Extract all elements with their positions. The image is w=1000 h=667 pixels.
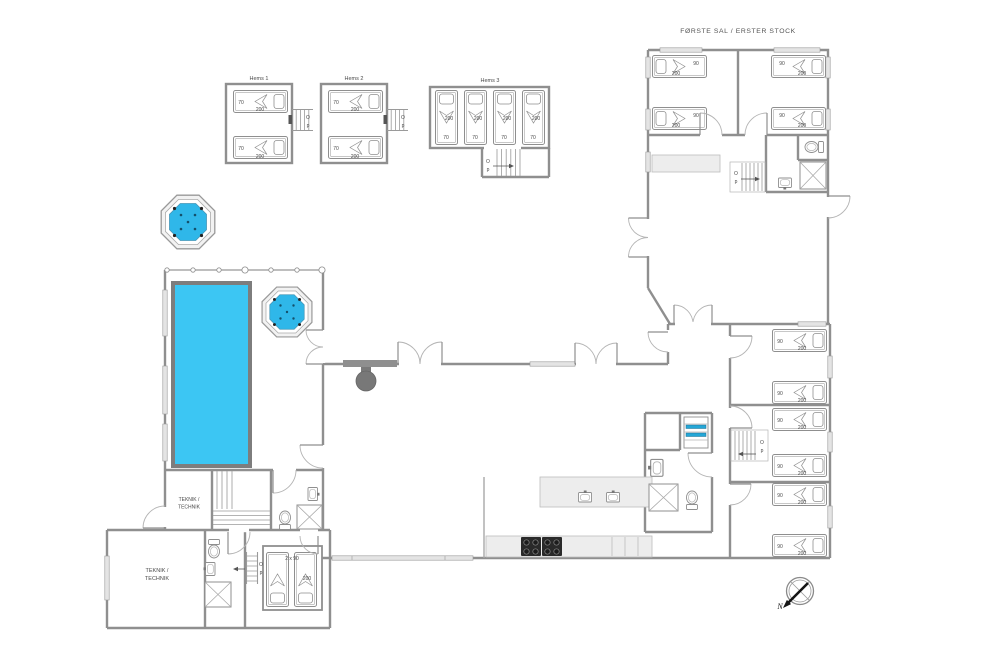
hems2-title: Hems 2	[345, 76, 364, 82]
bed-width-label: 70	[443, 135, 449, 141]
window	[826, 109, 830, 130]
window	[646, 152, 650, 172]
window	[163, 290, 167, 336]
stairs-up-o: O	[760, 440, 764, 446]
bed-width-label: 70	[333, 146, 339, 152]
bed-length-label: 200	[672, 123, 681, 129]
bed-length-label: 200	[532, 116, 541, 122]
shower-icon	[649, 484, 678, 511]
window	[530, 362, 575, 366]
kitchen-island	[540, 477, 652, 507]
double-bed-label: 2 x 90	[285, 556, 299, 562]
window	[646, 57, 650, 78]
bed-length-label: 200	[798, 500, 807, 506]
floor-plan-page: Hems 1 70 200 70 200 O p Hems 2 70 200 7…	[0, 0, 1000, 667]
bed-length-label: 200	[351, 107, 360, 113]
bed-length-label: 200	[798, 123, 807, 129]
bed-length-label: 200	[474, 116, 483, 122]
ladder-arrow-head	[233, 567, 238, 572]
cooktop-icon	[542, 537, 562, 556]
bed-width-label: 70	[472, 135, 478, 141]
stairs-up-p: p	[487, 167, 490, 173]
bed-width-label: 90	[693, 61, 699, 67]
stairs-up-o: O	[734, 171, 738, 177]
bed-width-label: 90	[777, 339, 783, 345]
bed-length-label: 200	[303, 576, 312, 582]
shower-icon	[800, 162, 826, 189]
window	[105, 556, 109, 600]
hems3-title: Hems 3	[481, 78, 500, 84]
hems1-title: Hems 1	[250, 76, 269, 82]
hems3-stairs-icon	[493, 149, 520, 176]
technic-room-label: TECHNIK	[145, 576, 169, 582]
floor-plan-drawing: Hems 1 70 200 70 200 O p Hems 2 70 200 7…	[0, 0, 1000, 667]
bed-length-label: 200	[798, 425, 807, 431]
bed-width-label: 70	[238, 100, 244, 106]
bed-width-label: 70	[530, 135, 536, 141]
window	[646, 109, 650, 130]
north-label: N	[776, 602, 783, 611]
bed-width-label: 90	[777, 493, 783, 499]
technic-room-label: TECHNIK	[178, 505, 201, 511]
stairs-up-o: O	[401, 115, 405, 121]
bed-length-label: 200	[798, 346, 807, 352]
bed-length-label: 200	[672, 71, 681, 77]
stairs-up-p: p	[307, 123, 310, 129]
cooktop-icon	[521, 537, 541, 556]
stairs-up-o: O	[486, 159, 490, 165]
bed-width-label: 90	[777, 464, 783, 470]
bed-width-label: 90	[777, 418, 783, 424]
window	[163, 366, 167, 414]
compass-needle	[788, 583, 808, 603]
shelf-item	[686, 425, 706, 429]
first-floor-plan: FØRSTE SAL / ERSTER STOCK 90 200 90 200 …	[629, 28, 851, 324]
stairs-up-o: O	[259, 562, 263, 568]
loft-plan-hems3: Hems 3 200 200 200 200 70 70 70 70 O p	[430, 78, 549, 177]
compass-icon: N	[776, 578, 813, 612]
wardrobe-shelf	[652, 155, 720, 172]
bed-length-label: 200	[445, 116, 454, 122]
technic-room-label: TEKNIK /	[146, 568, 169, 574]
loft-plan-hems1: Hems 1 70 200 70 200 O p	[226, 76, 313, 163]
bed-length-label: 200	[798, 398, 807, 404]
bed-width-label: 90	[779, 61, 785, 67]
window	[332, 556, 473, 560]
shelf-item	[686, 433, 706, 437]
bed-length-label: 200	[503, 116, 512, 122]
bed-length-label: 200	[798, 71, 807, 77]
technic-room-label: TEKNIK /	[179, 497, 200, 503]
loft-ladder-icon	[247, 552, 258, 584]
bed-length-label: 200	[798, 551, 807, 557]
bed-length-label: 200	[798, 471, 807, 477]
stairs-up-p: p	[260, 570, 263, 576]
loft-plan-hems2: Hems 2 70 200 70 200 O p	[321, 76, 408, 163]
bed-width-label: 70	[501, 135, 507, 141]
window	[163, 424, 167, 461]
window	[828, 506, 832, 528]
pool-stairs-icon	[213, 471, 270, 525]
bed-width-label: 70	[238, 146, 244, 152]
window	[798, 322, 826, 326]
bed-width-label: 90	[777, 544, 783, 550]
bed-width-label: 90	[693, 113, 699, 119]
first-floor-stairs-icon	[730, 162, 765, 192]
bed-width-label: 90	[777, 391, 783, 397]
utility-shelf	[684, 417, 708, 448]
bed-length-label: 200	[351, 154, 360, 160]
bed-length-label: 200	[256, 154, 265, 160]
bed-length-label: 200	[256, 107, 265, 113]
indoor-hot-tub	[262, 287, 312, 337]
bed-width-label: 70	[333, 100, 339, 106]
outdoor-hot-tub	[161, 195, 215, 249]
shower-icon	[205, 582, 231, 607]
stairs-up-p: p	[402, 123, 405, 129]
wood-stove-icon	[343, 360, 397, 391]
stairs-up-p: p	[761, 448, 764, 454]
window	[660, 48, 702, 52]
stairs-up-o: O	[306, 115, 310, 121]
shower-icon	[297, 505, 322, 529]
swimming-pool	[173, 283, 250, 466]
ground-floor-plan: TEKNIK / TECHNIK TEKNIK / TECHNIK O p 2 …	[105, 195, 832, 628]
window	[828, 432, 832, 452]
first-floor-title: FØRSTE SAL / ERSTER STOCK	[680, 28, 795, 35]
window	[774, 48, 820, 52]
kitchen-counter	[486, 536, 652, 557]
window	[828, 356, 832, 378]
window	[826, 57, 830, 78]
stairs-up-p: p	[735, 179, 738, 185]
bed-width-label: 90	[779, 113, 785, 119]
